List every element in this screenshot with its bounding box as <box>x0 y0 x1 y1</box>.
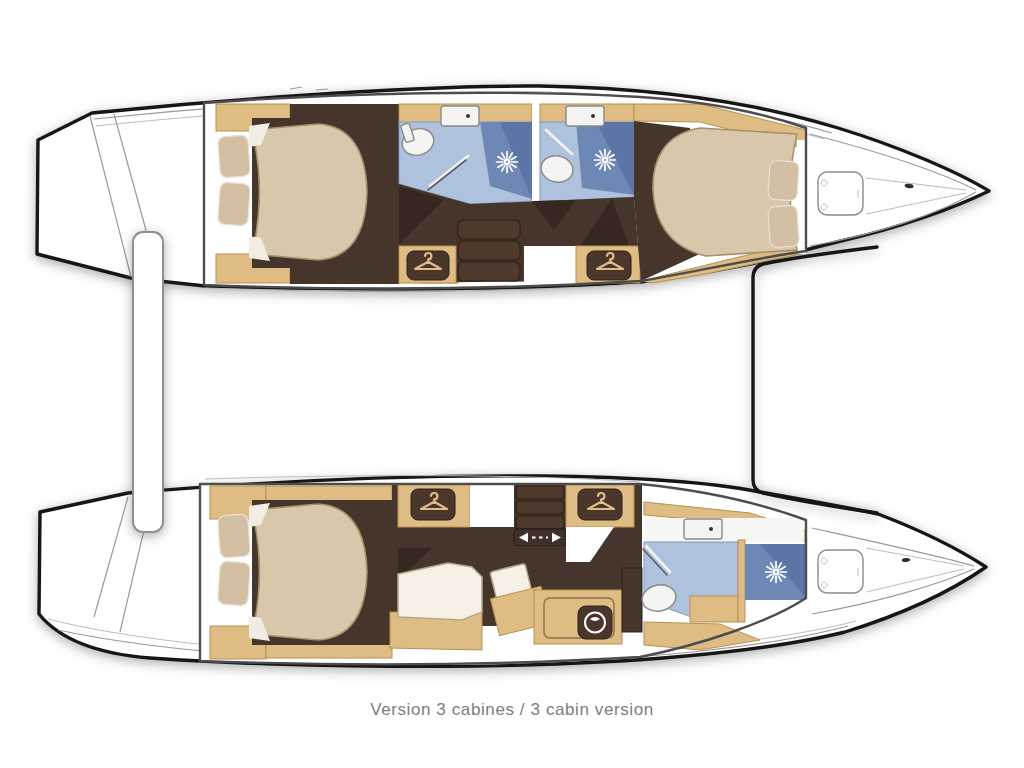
sink-icon <box>566 106 604 126</box>
pillow <box>218 182 251 226</box>
settee-cushion <box>398 563 482 620</box>
stairs <box>458 220 520 281</box>
sink-icon <box>441 106 479 126</box>
pillow <box>218 514 251 558</box>
hanger-locker <box>566 484 634 527</box>
sink-icon <box>684 519 722 539</box>
pillow <box>218 135 251 178</box>
port-hull <box>37 86 989 291</box>
forward-crossbeam <box>753 247 877 513</box>
port-bathroom-aft <box>399 104 532 204</box>
pillow <box>768 160 800 201</box>
pillow <box>218 561 251 606</box>
starboard-aft-cabin <box>210 486 402 659</box>
shelves <box>516 486 564 529</box>
catamaran-deck-plan <box>0 0 1024 768</box>
caption: Version 3 cabines / 3 cabin version <box>0 700 1024 720</box>
hanger-locker <box>399 246 456 283</box>
starboard-hull <box>39 476 986 667</box>
hanger-locker <box>398 484 470 527</box>
starboard-aft-bed <box>252 504 367 640</box>
starboard-bow-hatch <box>818 550 863 593</box>
port-bathroom-fwd <box>532 104 634 204</box>
pillow <box>768 205 800 248</box>
port-bow-hatch <box>818 172 863 215</box>
boat-floorplan: Version 3 cabines / 3 cabin version <box>0 0 1024 768</box>
port-aft-bed <box>252 124 367 260</box>
hanger-locker <box>576 246 640 283</box>
washer-cabinet <box>534 590 622 644</box>
sliding-door-symbol <box>514 529 566 546</box>
aft-beam <box>133 232 163 532</box>
